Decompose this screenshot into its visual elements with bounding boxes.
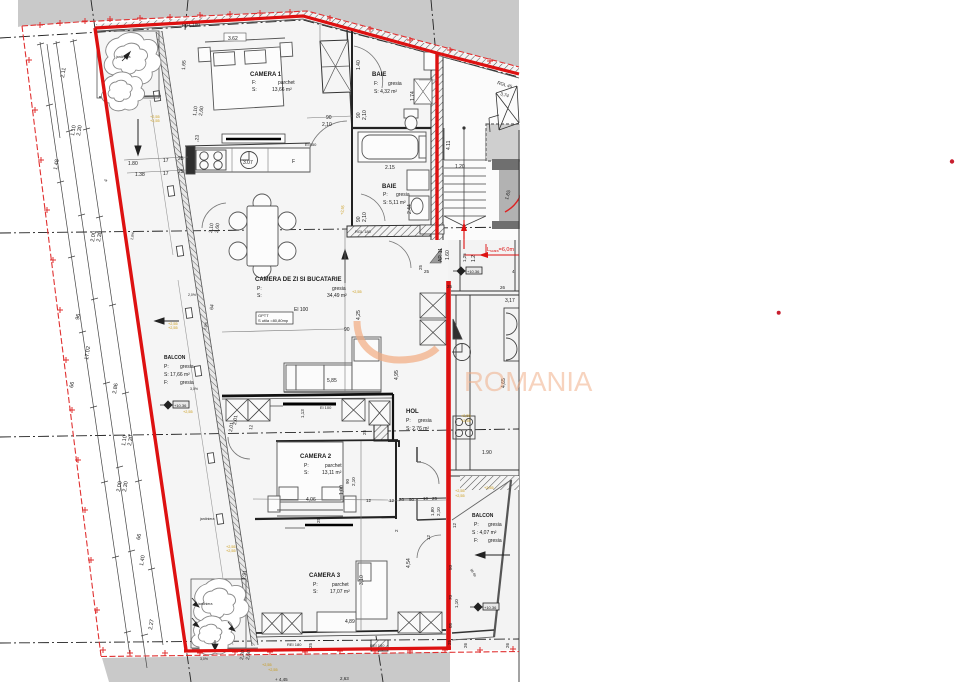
svg-text:F:: F: [164,380,168,386]
svg-text:jardiniera: jardiniera [115,55,130,59]
svg-text:26: 26 [500,285,506,290]
svg-text:+2,55: +2,55 [455,489,465,493]
svg-text:P:: P: [406,418,411,424]
svg-text:50: 50 [448,564,453,570]
svg-text:2,10: 2,10 [351,477,356,486]
svg-text:12: 12 [452,522,457,528]
svg-text:2,0%: 2,0% [188,293,196,297]
svg-text:+2,55: +2,55 [455,494,465,498]
svg-text:1.90: 1.90 [482,450,492,456]
svg-text:CAMERA 1: CAMERA 1 [250,72,282,78]
svg-text:P:: P: [383,192,388,198]
svg-text:RGL 100: RGL 100 [182,22,201,28]
svg-text:S: 17,66 m²: S: 17,66 m² [164,372,190,378]
svg-text:RGL 180: RGL 180 [355,229,372,234]
svg-text:gresia: gresia [418,418,432,424]
svg-text:S:: S: [257,293,262,299]
svg-text:1.20: 1.20 [455,164,465,170]
svg-text:5,85: 5,85 [327,378,337,384]
svg-text:HOL: HOL [406,409,419,415]
svg-text:gresia: gresia [180,364,194,370]
svg-text:4,25: 4,25 [356,310,362,320]
svg-text:+2,55: +2,55 [226,549,236,553]
svg-text:34,49 m²: 34,49 m² [327,293,347,299]
svg-text:25: 25 [362,429,367,435]
svg-text:,23: ,23 [194,134,201,142]
svg-text:13,11 m²: 13,11 m² [322,470,342,476]
svg-text:+ 4,45: + 4,45 [275,677,288,682]
svg-text:El 100: El 100 [294,307,308,313]
svg-text:25: 25 [424,269,430,274]
svg-text:1.65: 1.65 [181,60,188,70]
svg-text:gresia: gresia [488,538,502,544]
svg-text:66: 66 [136,533,143,540]
svg-text:gresia: gresia [180,380,194,386]
svg-text:S:: S: [252,87,257,93]
svg-text:25: 25 [447,284,453,289]
svg-text:20: 20 [399,497,405,502]
svg-text:S: 2,76 m²: S: 2,76 m² [406,426,429,432]
svg-text:1.60: 1.60 [445,250,451,260]
svg-text:2,10: 2,10 [362,110,368,120]
svg-text:BAIE: BAIE [372,72,386,78]
svg-text:2,63: 2,63 [340,676,349,681]
svg-text:REI 180: REI 180 [370,643,385,648]
svg-text:2.15: 2.15 [385,165,395,171]
svg-text:4,95: 4,95 [394,370,400,380]
svg-text:70: 70 [448,594,453,600]
svg-text:+2,55: +2,55 [183,410,193,414]
svg-text:S utila =80,80mp: S utila =80,80mp [258,318,289,323]
svg-text:P:: P: [257,286,262,292]
svg-text:66: 66 [69,381,76,388]
svg-text:S: 4,32 m²: S: 4,32 m² [374,89,397,95]
svg-text:El 100: El 100 [320,405,332,410]
svg-text:1.80: 1.80 [128,161,138,167]
svg-text:F: F [292,159,295,165]
svg-text:+10.36: +10.36 [467,269,480,274]
svg-text:jardiniera: jardiniera [197,602,212,606]
svg-text:BAIE: BAIE [382,184,396,190]
svg-text:2,10: 2,10 [322,122,332,128]
svg-text:12: 12 [426,534,431,540]
svg-text:REI 180: REI 180 [287,642,302,647]
svg-text:BALCON: BALCON [164,355,186,361]
svg-text:S : 4,07 m²: S : 4,07 m² [472,530,497,536]
svg-text:+2,55: +2,55 [461,419,471,423]
svg-text:96: 96 [75,313,82,320]
svg-text:3.07: 3.07 [243,160,253,166]
svg-text:P:: P: [313,582,318,588]
svg-text:gresia: gresia [388,81,402,87]
svg-text:10: 10 [423,496,429,501]
svg-text:90: 90 [344,327,350,333]
svg-text:F:: F: [374,81,378,87]
svg-text:1.2: 1.2 [471,255,477,262]
svg-text:17: 17 [163,158,169,164]
svg-text:S:: S: [304,470,309,476]
svg-text:El 450: El 450 [305,142,317,147]
svg-text:90: 90 [409,497,415,502]
svg-text:90: 90 [345,478,350,484]
svg-text:3,17: 3,17 [505,298,515,304]
svg-text:17: 17 [163,171,169,177]
svg-text:+2,55: +2,55 [268,668,278,672]
svg-text:CAMERA DE ZI SI BUCATARIE: CAMERA DE ZI SI BUCATARIE [255,277,342,283]
svg-text:25: 25 [447,639,452,645]
svg-text:1.38: 1.38 [135,172,145,178]
svg-text:CAMERA 2: CAMERA 2 [300,454,332,460]
svg-text:05: 05 [448,622,453,628]
svg-text:1,80: 1,80 [430,507,435,516]
svg-text:+10.36: +10.36 [174,403,187,408]
svg-text:1,10: 1,10 [454,599,459,608]
svg-text:parchet: parchet [325,463,342,469]
svg-text:90: 90 [326,115,332,121]
svg-text:4,89: 4,89 [345,619,355,625]
svg-text:CAMERA 3: CAMERA 3 [309,573,341,579]
svg-text:+2,55: +2,55 [262,663,272,667]
svg-text:+2,55: +2,55 [352,290,362,294]
svg-text:gresia: gresia [332,286,346,292]
svg-text:1,25: 1,25 [462,253,467,262]
svg-text:25: 25 [316,517,321,523]
svg-text:3,0%: 3,0% [190,387,198,391]
svg-text:P:: P: [164,364,169,370]
svg-text:gresia: gresia [396,192,410,198]
svg-text:+2,55: +2,55 [150,119,160,123]
svg-text:1.74: 1.74 [410,91,416,101]
svg-text:1,00: 1,00 [339,485,345,495]
svg-text:P:: P: [474,522,479,528]
svg-text:2,10: 2,10 [436,507,441,516]
svg-text:jardiniera: jardiniera [199,517,214,521]
svg-text:1,13: 1,13 [300,409,305,418]
svg-text:25: 25 [308,642,313,648]
svg-text:S:: S: [313,589,318,595]
svg-text:1.40: 1.40 [356,60,362,70]
svg-text:S: 5,11 m²: S: 5,11 m² [383,200,406,206]
svg-text:12: 12 [389,498,395,503]
svg-text:P:: P: [304,463,309,469]
svg-text:25: 25 [178,156,184,162]
svg-text:BALCON: BALCON [472,513,494,519]
svg-text:ROMANIA: ROMANIA [464,366,593,397]
svg-text:4,06: 4,06 [306,497,316,503]
svg-text:26: 26 [505,642,510,648]
svg-text:parchet: parchet [332,582,349,588]
svg-text:2.44: 2.44 [407,204,413,214]
svg-text:+2,55: +2,55 [168,326,178,330]
svg-text:13,66 m²: 13,66 m² [272,87,292,93]
svg-text:12: 12 [366,498,372,503]
svg-text:+10.36: +10.36 [484,605,497,610]
svg-text:parchet: parchet [278,80,295,86]
svg-text:3,10: 3,10 [359,575,365,585]
svg-text:3,0%: 3,0% [200,657,208,661]
svg-text:64: 64 [209,304,216,311]
svg-text:AP. 11: AP. 11 [438,248,444,262]
svg-text:4,54: 4,54 [406,558,412,568]
svg-text:3.62: 3.62 [228,36,238,42]
svg-text:F:: F: [474,538,478,544]
svg-text:25: 25 [178,169,184,175]
svg-text:+2,55: +2,55 [484,486,494,490]
svg-text:25: 25 [418,264,423,270]
svg-text:25: 25 [432,496,438,501]
svg-text:2,10: 2,10 [362,212,368,222]
svg-text:gresia: gresia [488,522,502,528]
svg-text:4.11: 4.11 [446,140,452,150]
svg-text:F:: F: [252,80,256,86]
svg-text:+2,55: +2,55 [461,414,471,418]
svg-text:17,07 m²: 17,07 m² [330,589,350,595]
svg-text:26: 26 [463,642,468,648]
